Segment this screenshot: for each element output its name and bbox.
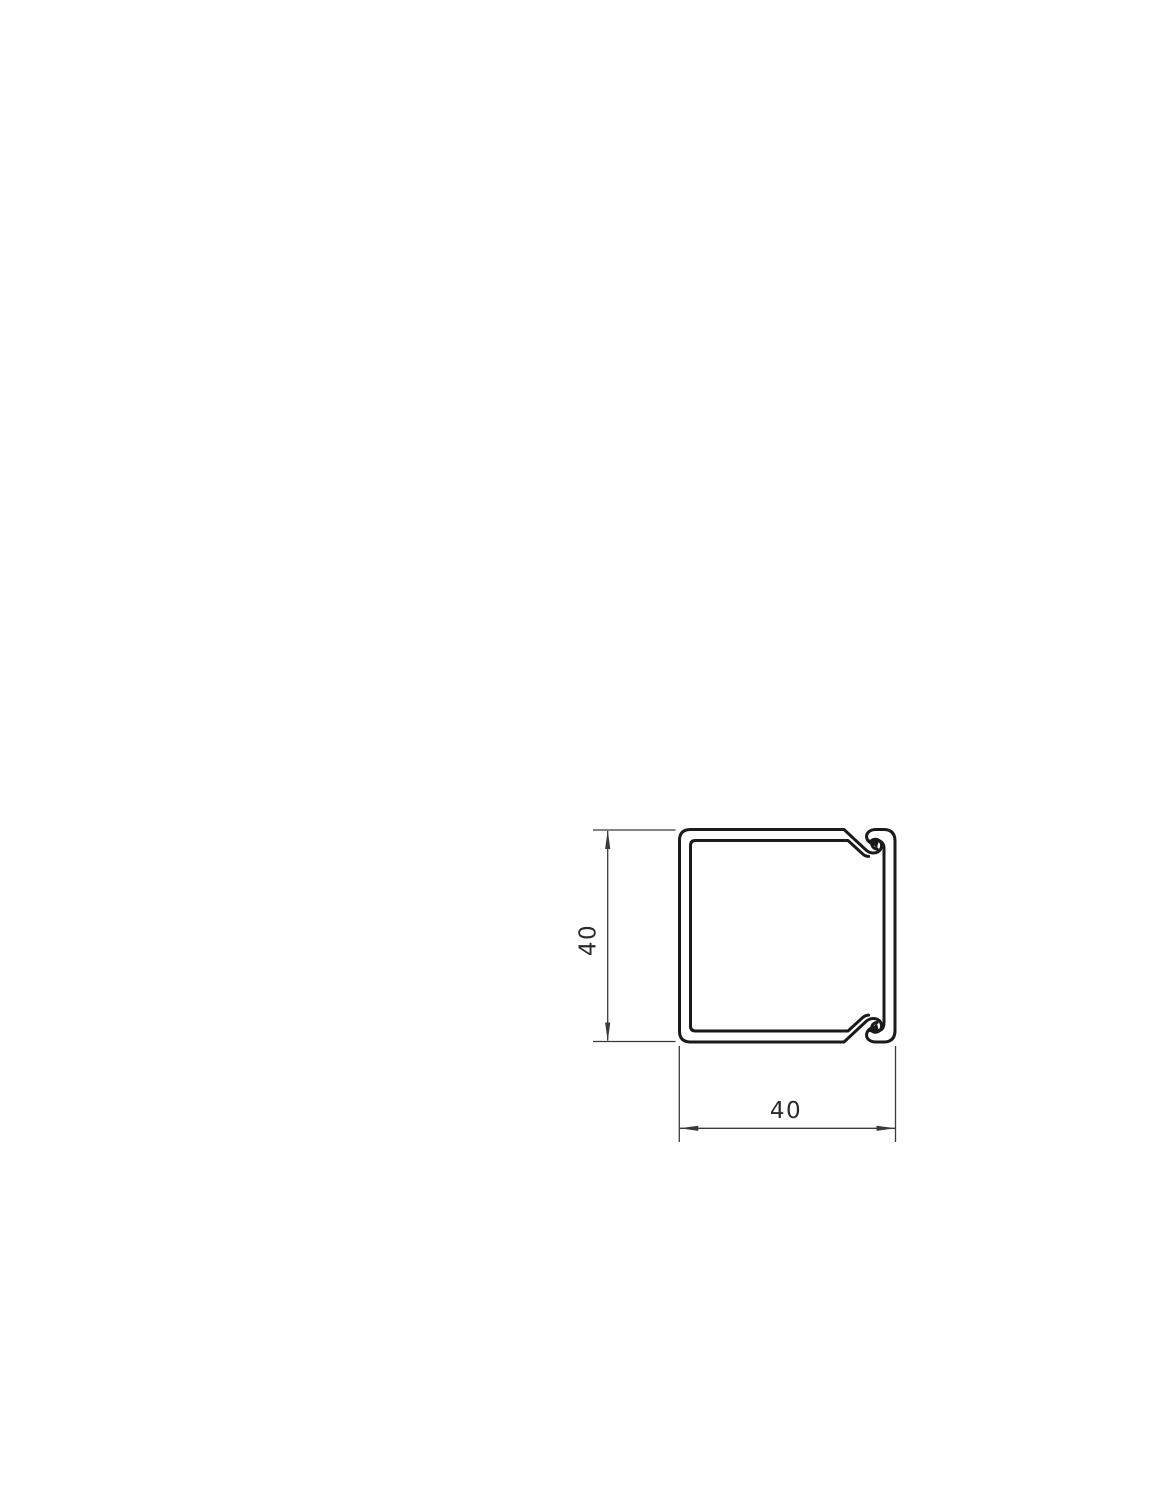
- width-arrow-right-icon: [877, 1126, 896, 1131]
- height-arrow-up-icon: [605, 830, 610, 849]
- drawing-page: 40 40: [0, 0, 1159, 1500]
- profile-top-half: [680, 830, 896, 937]
- height-arrow-down-icon: [605, 1023, 610, 1042]
- base-wall-inner-line: [691, 841, 869, 937]
- height-dimension-label: 40: [576, 924, 602, 956]
- profile-bottom-half: [680, 936, 896, 1043]
- width-dimension-label: 40: [770, 1098, 802, 1124]
- trunking-profile: [680, 830, 896, 1043]
- height-dimension: 40: [576, 830, 676, 1042]
- technical-drawing-canvas: 40 40: [0, 0, 1159, 1500]
- cover-inner-line: [872, 841, 884, 936]
- width-arrow-left-icon: [679, 1126, 698, 1131]
- width-dimension: 40: [679, 1046, 895, 1142]
